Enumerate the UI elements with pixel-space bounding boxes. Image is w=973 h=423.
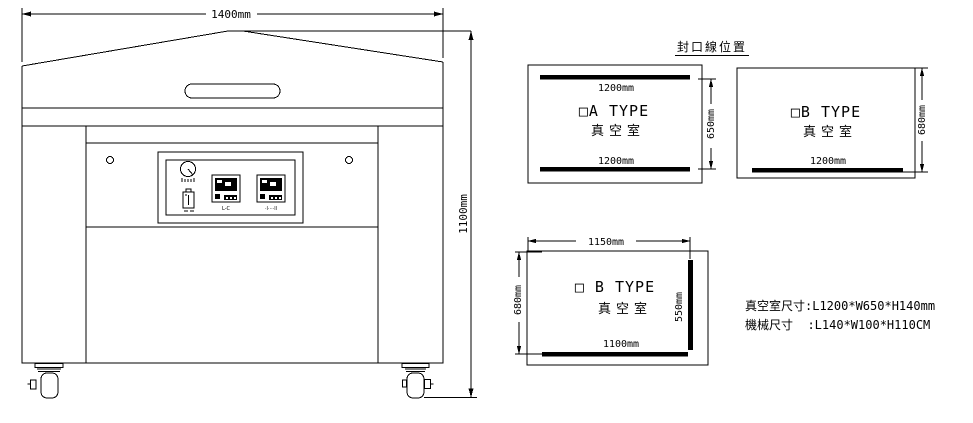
caster-right-axle: [425, 380, 431, 389]
power-switch-icon: [183, 189, 194, 211]
chamber-a-type-label: □A TYPE: [579, 102, 649, 120]
caster-left-plate: [35, 364, 63, 368]
spec-line-machine-size: 機械尺寸 :L140*W100*H110CM: [745, 317, 930, 332]
arrow-up-icon: [920, 68, 924, 76]
spec-line-chamber-size: 真空室尺寸:L1200*W650*H140mm: [745, 298, 935, 313]
chamber-b2-side-seal-dim-label: 550mm: [674, 292, 685, 322]
controller1-digit: [217, 180, 222, 183]
control-panel: L-C ·l····ll: [158, 152, 303, 223]
chamber-b2-bottom-dim: 1100mm: [603, 339, 639, 350]
caster-wheel-right: [402, 364, 434, 399]
chamber-a-height-dim-label: 650mm: [706, 109, 717, 139]
chamber-b1-diagram: □B TYPE 真空室 1200mm 680mm: [737, 68, 928, 178]
controller2-button: [260, 194, 265, 199]
digital-controller-1: L-C: [212, 175, 240, 212]
screw-right-icon: [346, 157, 353, 164]
chamber-b2-bottom-seal-bar: [542, 352, 688, 357]
controller1-key-dot: [226, 197, 228, 199]
lid-roof: [22, 31, 471, 66]
chamber-b1-seal-dim: 1200mm: [810, 156, 846, 167]
width-dimension: 1400mm: [22, 8, 443, 62]
front-panel-frame: [86, 126, 378, 363]
chamber-b2-width-dim-label: 1150mm: [588, 237, 624, 248]
chamber-b2-side-seal-bar: [688, 260, 693, 350]
caster-right-plate: [402, 364, 429, 368]
digital-controller-2: ·l····ll: [257, 175, 285, 212]
controller1-key-dot2: [230, 197, 232, 199]
drawing-canvas: 1400mm: [0, 0, 973, 423]
chamber-a-bottom-dim: 1200mm: [598, 156, 634, 167]
caster-left-axle: [31, 380, 37, 389]
chamber-b2-name-label: 真空室: [598, 301, 652, 317]
spec-notes: 真空室尺寸:L1200*W650*H140mm 機械尺寸 :L140*W100*…: [745, 298, 935, 332]
arrow-left-icon: [22, 12, 31, 17]
caster-left-swivel: [37, 369, 61, 372]
arrow-up-icon: [469, 31, 474, 40]
caster-right-brake: [403, 380, 407, 387]
height-dim-label: 1100mm: [457, 194, 470, 234]
machine-outline: [22, 62, 443, 363]
chamber-a-name-label: 真空室: [591, 123, 645, 139]
switch-tab: [186, 189, 191, 192]
chamber-b1-height-dim-label: 680mm: [917, 105, 928, 135]
chamber-a-top-seal-bar: [540, 75, 690, 80]
gauge-needle: [188, 169, 193, 175]
controller1-digit2: [225, 182, 231, 186]
arrow-down-icon: [920, 164, 924, 172]
controller1-label: L-C: [222, 206, 231, 212]
height-dimension: 1100mm: [424, 31, 477, 398]
width-dim-label: 1400mm: [211, 8, 251, 21]
chamber-b1-seal-bar: [752, 168, 903, 173]
controller2-key-dot: [271, 197, 273, 199]
chamber-b2-width-dimension: 1150mm: [528, 237, 690, 259]
caster-right-wheel: [407, 373, 424, 398]
arrow-right-icon: [682, 239, 690, 243]
lid-band: [22, 62, 443, 108]
arrow-down-icon: [469, 389, 474, 398]
caster-right-swivel: [405, 369, 426, 372]
controller1-key-dot3: [234, 197, 236, 199]
chamber-b2-diagram: 1150mm 680mm □ B TYPE 真空室 550mm 1100mm: [513, 237, 708, 365]
controller1-button: [215, 194, 220, 199]
arrow-up-icon: [709, 79, 713, 87]
chamber-b2-height-dim-label: 680mm: [513, 285, 524, 315]
switch-detail: [185, 195, 189, 205]
chamber-a-diagram: 1200mm □A TYPE 真空室 1200mm 650mm: [528, 65, 717, 183]
vacuum-gauge-icon: [181, 162, 196, 183]
chamber-a-height-dimension: 650mm: [698, 79, 717, 169]
machine-front-view: 1400mm: [22, 8, 477, 398]
seal-position-title: 封口線位置: [677, 39, 747, 54]
controller2-digit: [262, 180, 267, 183]
caster-left-wheel: [41, 373, 58, 398]
chamber-b1-type-label: □B TYPE: [791, 103, 861, 121]
screw-left-icon: [107, 157, 114, 164]
controller2-digit2: [270, 182, 276, 186]
arrow-left-icon: [528, 239, 536, 243]
arrow-down-icon: [517, 346, 521, 354]
arrow-right-icon: [434, 12, 443, 17]
controller2-key-dot3: [279, 197, 281, 199]
seal-position-heading: 封口線位置: [675, 39, 749, 56]
chamber-a-top-dim: 1200mm: [598, 83, 634, 94]
arrow-down-icon: [709, 161, 713, 169]
lid-handle: [185, 84, 280, 98]
vacuum-packer-technical-drawing: 1400mm: [0, 0, 973, 423]
controller2-key-dot2: [275, 197, 277, 199]
controller2-label: ·l····ll: [265, 206, 277, 212]
arrow-up-icon: [517, 252, 521, 260]
caster-wheel-left: [28, 364, 64, 399]
gauge-scale-ticks: [182, 178, 194, 182]
chamber-a-bottom-seal-bar: [540, 167, 690, 172]
chamber-b1-name-label: 真空室: [803, 124, 857, 140]
chamber-b2-type-label: □ B TYPE: [575, 278, 655, 296]
